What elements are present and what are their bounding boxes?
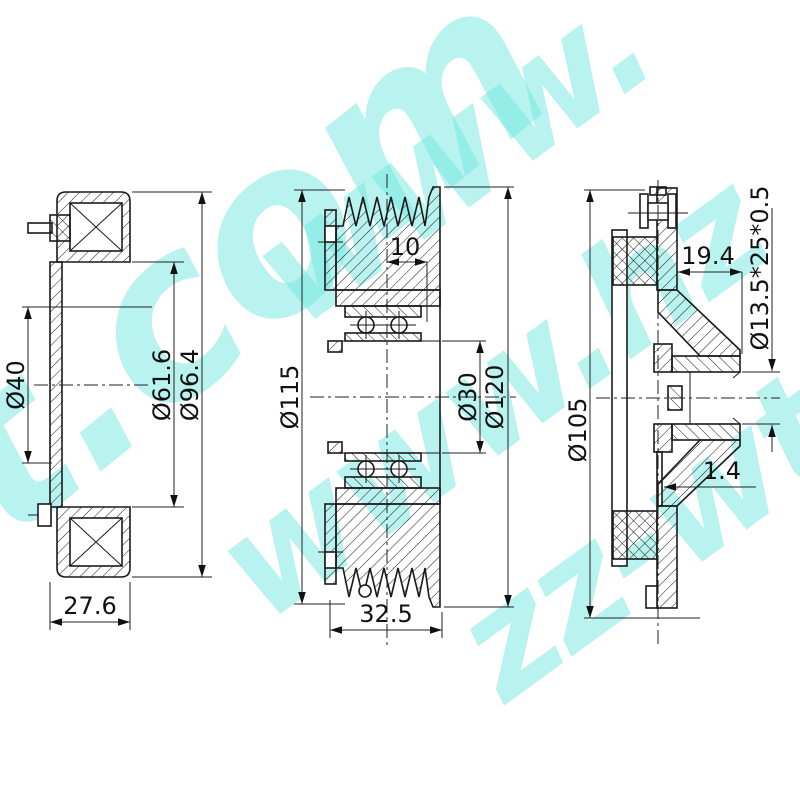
pulley-left-seal-top (325, 226, 336, 242)
belt-section-detail (359, 585, 371, 597)
dim-label-coil-outer-diameter: Ø96.4 (176, 349, 204, 421)
driven-plate-bottom (657, 506, 677, 608)
dim-label-coil-bore: Ø40 (2, 360, 30, 409)
rivet-flange-left (640, 194, 648, 228)
rubber-damper-top (613, 237, 657, 285)
pulley-left-flange-bottom (325, 504, 336, 584)
dim-label-groove-diameter: Ø115 (276, 365, 304, 430)
pulley-left-flange-top (325, 210, 336, 290)
pulley-web-bottom (336, 488, 440, 504)
hub-collar-top (654, 344, 672, 372)
bearing-inner-race-bottom (345, 453, 421, 461)
dim-label-plate-thickness: 1.4 (703, 457, 741, 485)
sleeve-tab-top (328, 341, 342, 352)
hub-collar-bottom (654, 424, 672, 452)
terminal-collar (50, 215, 70, 241)
dim-label-hub-length: 19.4 (681, 242, 734, 270)
dim-label-pulley-outer-diameter: Ø120 (481, 365, 509, 430)
hub-wall-top (672, 356, 740, 372)
pulley-left-seal-bottom (325, 552, 336, 568)
dim-label-hub-outer-diameter: Ø105 (564, 398, 592, 463)
dim-label-pulley-bore: Ø30 (454, 372, 482, 421)
technical-drawing-canvas: t.com www. www.hz zz-wt.c Ø40 Ø61.6 Ø96 (0, 0, 800, 800)
bearing-inner-race-top (345, 333, 421, 341)
terminal-pin (28, 223, 52, 233)
dim-label-pulley-width: 32.5 (359, 600, 412, 628)
pulley-web-top (336, 290, 440, 306)
bearing-outer-race-bottom (345, 477, 421, 488)
hub-wall-bottom (672, 424, 740, 440)
rivet-flange-right (668, 194, 676, 228)
technical-drawing-page: t.com www. www.hz zz-wt.c Ø40 Ø61.6 Ø96 (0, 0, 800, 800)
dim-label-groove-offset: 10 (390, 233, 421, 261)
dim-label-coil-width: 27.6 (63, 592, 116, 620)
mounting-lug (38, 504, 51, 526)
bearing-outer-race-top (345, 306, 421, 317)
rubber-damper-bottom (613, 511, 657, 559)
sleeve-tab-bottom (328, 442, 342, 453)
plate-foot (646, 586, 657, 608)
dim-label-coil-inner-diameter: Ø61.6 (148, 349, 176, 421)
dim-label-spline-spec: Ø13.5*25*0.5 (746, 185, 774, 350)
